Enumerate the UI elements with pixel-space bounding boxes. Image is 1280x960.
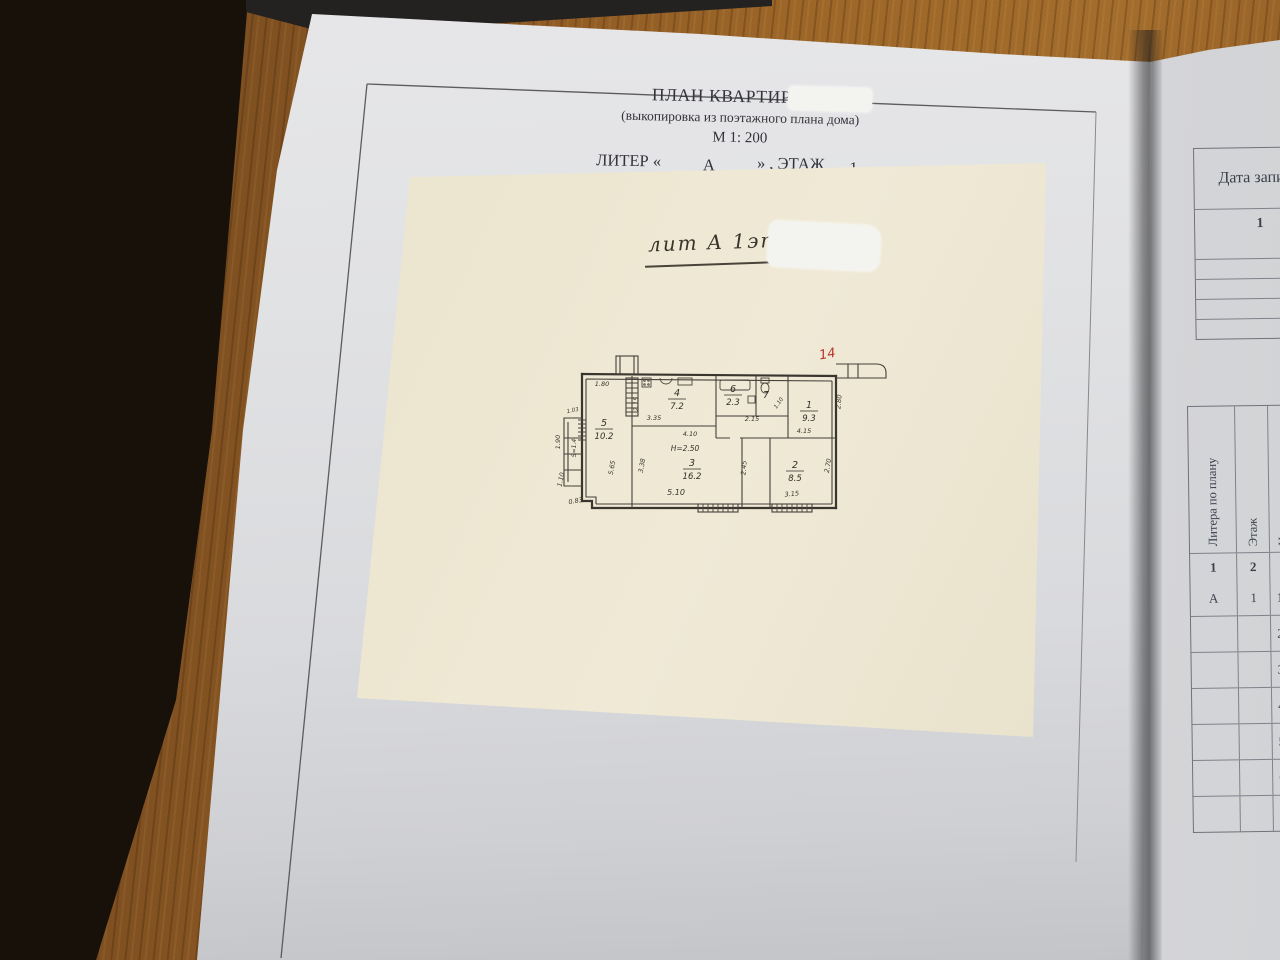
dimension-label: 1.03: [566, 407, 580, 416]
rooms-table-row: 3: [1191, 650, 1280, 688]
rooms-table-cell: [1238, 688, 1271, 723]
room-label: 2: [792, 460, 798, 471]
rooms-table-cell: [1193, 796, 1239, 832]
records-empty-cell: [1196, 258, 1280, 279]
dimension-label: 1.80: [595, 380, 609, 388]
counter-icon: [678, 378, 692, 385]
rooms-table-header-label: Номер комнаты: [1275, 463, 1280, 546]
rooms-table-cell: [1239, 796, 1272, 831]
chimney-lines: [620, 356, 634, 374]
rooms-table-row: 6: [1193, 758, 1280, 796]
room-label: 8.5: [788, 474, 802, 484]
dimension-label: 4.15: [797, 427, 811, 435]
records-empty-row: [1196, 317, 1280, 339]
rooms-table-header-label: Литера по плану: [1204, 458, 1220, 547]
rooms-table-row: 5: [1192, 722, 1280, 760]
room-label: 2.3: [726, 398, 740, 408]
dimension-label: 2.15: [745, 415, 759, 423]
records-table-header: Дата запи: [1194, 147, 1280, 209]
records-empty-cell: [1195, 238, 1280, 259]
dimension-label: 2.45: [739, 460, 748, 475]
dimension-label: 5.65: [607, 460, 617, 476]
stair-landing: [836, 364, 886, 378]
records-empty-cell: [1196, 298, 1280, 319]
whiteout-patch-over-plan-number: [788, 86, 873, 112]
washbasin-icon: [748, 396, 755, 403]
rooms-table-cell: [1192, 688, 1238, 724]
records-empty-row: [1195, 238, 1280, 259]
room-label: 10.2: [595, 432, 614, 442]
rooms-table-cell: 6: [1272, 759, 1280, 795]
photo-of-floorplan-document: Дата запи 1 Литера по плануЭтажНомер ком…: [0, 0, 1280, 960]
room-label: 16.2: [683, 472, 702, 482]
room-label: 7: [763, 390, 769, 401]
rooms-table-cell: [1237, 652, 1270, 687]
rooms-table-cell: [1191, 616, 1237, 652]
rooms-table-row: А11: [1190, 579, 1280, 616]
apartment-number-red: 14: [818, 346, 837, 364]
rooms-table-number-cell: [1269, 552, 1280, 580]
chimney-stack: [616, 356, 638, 374]
records-table: Дата запи 1: [1193, 146, 1280, 340]
rooms-table-cell: [1237, 616, 1270, 651]
rooms-table-row: 2: [1191, 614, 1280, 652]
floor-plan-drawing: 510.247.262.3719.3316.228.51.801.031.90S…: [552, 338, 904, 542]
dimension-label: Н=2.50: [671, 444, 700, 453]
dimension-label: 3.38: [637, 458, 647, 474]
rooms-table-cell: 4: [1271, 687, 1280, 723]
records-empty-cell: [1196, 318, 1280, 339]
liter-prefix: ЛИТЕР «: [596, 150, 661, 170]
room-label: 5: [601, 418, 607, 429]
room-label: 9.3: [802, 414, 816, 424]
rooms-table-cell: 3: [1270, 651, 1280, 687]
interior-walls: [632, 376, 836, 508]
rooms-table-header-cell: Этаж: [1234, 406, 1269, 552]
rooms-table-cell: [1239, 760, 1272, 795]
rooms-table-header-cell: Номер комнаты: [1267, 405, 1280, 552]
records-table-number-row: 1: [1195, 208, 1280, 240]
whiteout-patch-over-note: [767, 220, 881, 272]
plan-labels: 510.247.262.3719.3316.228.51.801.031.90S…: [554, 380, 844, 506]
rooms-table-number-cell: 2: [1236, 553, 1269, 580]
inner-wall-line: [586, 379, 832, 504]
rooms-table-number-cell: 1: [1190, 553, 1236, 581]
dimension-label: 0.83: [568, 496, 584, 506]
rooms-table-cell: А: [1190, 580, 1236, 616]
rooms-table-cell: [1191, 652, 1237, 688]
records-empty-row: [1196, 297, 1280, 319]
page-gap-shadow: [1128, 30, 1162, 960]
rooms-table-cell: [1238, 724, 1271, 759]
dimension-label: 1.10: [773, 396, 785, 410]
room-label: 4: [674, 388, 680, 399]
document-title-block: ПЛАН КВАРТИРЫ № (выкопировка из поэтажно…: [539, 80, 941, 180]
room-label: 6: [730, 384, 736, 395]
rooms-table-header-label: Этаж: [1245, 518, 1260, 546]
rooms-table-row: 7: [1193, 794, 1280, 832]
dimension-label: 1.10: [556, 472, 567, 488]
rooms-table-cell: 7: [1272, 795, 1280, 831]
rooms-table-cell: 1: [1236, 580, 1269, 615]
dimension-label: 3.35: [647, 414, 661, 422]
rooms-table-cell: [1193, 760, 1239, 796]
rooms-table-header-cell: Литера по плану: [1188, 406, 1236, 553]
rooms-table-cell: 2: [1270, 615, 1280, 651]
room-label: 3: [689, 458, 695, 469]
rooms-table-row: 4: [1192, 686, 1280, 724]
sink-icon: [660, 378, 672, 384]
rooms-table-cell: [1192, 724, 1238, 760]
room-label: 1: [806, 400, 812, 411]
dimension-label: 2.15: [632, 397, 640, 411]
dimension-label: 1.90: [554, 435, 562, 449]
records-empty-row: [1196, 277, 1280, 299]
dimension-label: 2.80: [834, 394, 843, 409]
rooms-table-cell: 1: [1269, 579, 1280, 615]
dimension-label: 3.15: [784, 489, 799, 498]
dimension-label: 5.10: [667, 488, 685, 497]
records-empty-row: [1196, 257, 1280, 279]
rooms-table-cell: 5: [1271, 723, 1280, 759]
rooms-table: Литера по плануЭтажНомер комнаты 12 А112…: [1187, 404, 1280, 833]
dimension-label: 4.10: [683, 430, 697, 438]
records-empty-cell: [1196, 278, 1280, 299]
room-label: 7.2: [670, 402, 684, 412]
dimension-label: S=1.4: [571, 439, 578, 458]
